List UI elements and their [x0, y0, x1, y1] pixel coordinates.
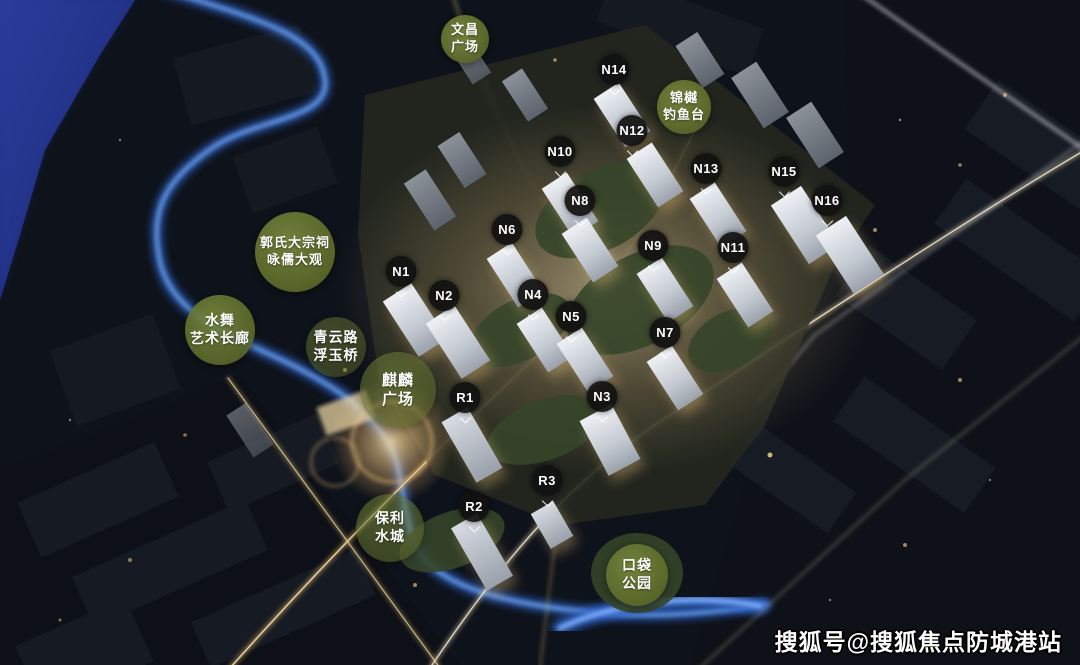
poi-label-shuiwu-art-gallery: 水舞艺术长廊 — [185, 295, 255, 365]
building-marker-label: N7 — [650, 317, 681, 348]
building-marker-label: N9 — [638, 230, 669, 261]
building-marker-r2: R2 — [459, 491, 490, 531]
poi-label-qingyun-road-fuyu-bridge: 青云路浮玉桥 — [306, 317, 366, 377]
building-marker-label: N15 — [769, 156, 800, 187]
building-marker-label: N12 — [617, 115, 648, 146]
chevron-down-icon — [554, 166, 565, 177]
chevron-down-icon — [501, 244, 512, 255]
chevron-down-icon — [700, 183, 711, 194]
chevron-down-icon — [626, 145, 637, 156]
building-marker-n11: N11 — [718, 232, 749, 272]
building-marker-n13: N13 — [691, 153, 722, 193]
building-marker-label: N13 — [691, 153, 722, 184]
chevron-down-icon — [541, 495, 552, 506]
building-marker-label: N4 — [518, 279, 549, 310]
building-marker-n3: N3 — [587, 381, 618, 421]
chevron-down-icon — [596, 411, 607, 422]
chevron-down-icon — [647, 260, 658, 271]
building-marker-n6: N6 — [492, 214, 523, 254]
building-marker-label: N6 — [492, 214, 523, 245]
building-marker-label: R3 — [532, 465, 563, 496]
building-marker-n12: N12 — [617, 115, 648, 155]
poi-label-text: 青云路浮玉桥 — [314, 329, 359, 365]
building-marker-label: N11 — [718, 232, 749, 263]
poi-label-text: 口袋公园 — [622, 557, 652, 593]
chevron-down-icon — [565, 331, 576, 342]
building-marker-label: N10 — [545, 136, 576, 167]
poi-label-text: 锦樾钓鱼台 — [663, 90, 705, 123]
watermark: 搜狐号@搜狐焦点防城港站 — [775, 623, 1062, 657]
building-marker-n4: N4 — [518, 279, 549, 319]
building-marker-r1: R1 — [450, 382, 481, 422]
poi-label-jinyue-fishing-terrace: 锦樾钓鱼台 — [657, 80, 711, 134]
poi-label-text: 保利水城 — [375, 510, 405, 546]
building-marker-n10: N10 — [545, 136, 576, 176]
poi-label-guoshi-ancestral-hall: 郭氏大宗祠咏儒大观 — [255, 212, 335, 292]
building-marker-n15: N15 — [769, 156, 800, 196]
chevron-down-icon — [438, 310, 449, 321]
building-marker-label: N16 — [812, 185, 843, 216]
chevron-down-icon — [574, 215, 585, 226]
chevron-down-icon — [459, 412, 470, 423]
building-marker-n9: N9 — [638, 230, 669, 270]
building-marker-n5: N5 — [556, 301, 587, 341]
poi-label-baoli-water-city: 保利水城 — [356, 494, 424, 562]
building-marker-r3: R3 — [532, 465, 563, 505]
chevron-down-icon — [468, 521, 479, 532]
poi-label-qilin-square: 麒麟广场 — [360, 352, 436, 428]
chevron-down-icon — [395, 286, 406, 297]
chevron-down-icon — [778, 186, 789, 197]
building-marker-label: N3 — [587, 381, 618, 412]
poi-label-text: 郭氏大宗祠咏儒大观 — [260, 235, 330, 268]
building-marker-label: N8 — [565, 185, 596, 216]
building-marker-label: N5 — [556, 301, 587, 332]
building-marker-label: R2 — [459, 491, 490, 522]
chevron-down-icon — [608, 84, 619, 95]
poi-label-wenchang-square: 文昌广场 — [441, 15, 489, 63]
poi-label-text: 水舞艺术长廊 — [190, 312, 250, 348]
aerial-site-plan: 文昌广场锦樾钓鱼台郭氏大宗祠咏儒大观水舞艺术长廊青云路浮玉桥麒麟广场保利水城口袋… — [0, 0, 1080, 665]
building-marker-n8: N8 — [565, 185, 596, 225]
chevron-down-icon — [821, 215, 832, 226]
building-marker-label: N14 — [599, 54, 630, 85]
building-marker-n2: N2 — [429, 280, 460, 320]
building-marker-n16: N16 — [812, 185, 843, 225]
poi-label-text: 文昌广场 — [451, 22, 479, 55]
chevron-down-icon — [527, 309, 538, 320]
building-marker-label: N2 — [429, 280, 460, 311]
building-marker-n14: N14 — [599, 54, 630, 94]
chevron-down-icon — [659, 347, 670, 358]
building-marker-n1: N1 — [386, 256, 417, 296]
poi-label-text: 麒麟广场 — [382, 371, 414, 409]
site-render-background — [0, 0, 1080, 665]
building-marker-label: N1 — [386, 256, 417, 287]
poi-label-pocket-park: 口袋公园 — [606, 544, 668, 606]
chevron-down-icon — [727, 262, 738, 273]
building-marker-n7: N7 — [650, 317, 681, 357]
building-marker-label: R1 — [450, 382, 481, 413]
